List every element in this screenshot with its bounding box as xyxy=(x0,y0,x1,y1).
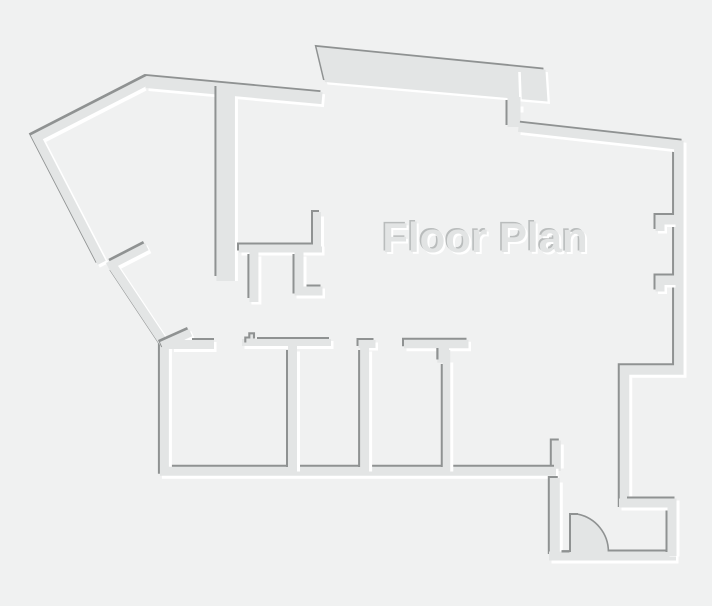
svg-text:Floor Plan: Floor Plan xyxy=(382,214,587,261)
